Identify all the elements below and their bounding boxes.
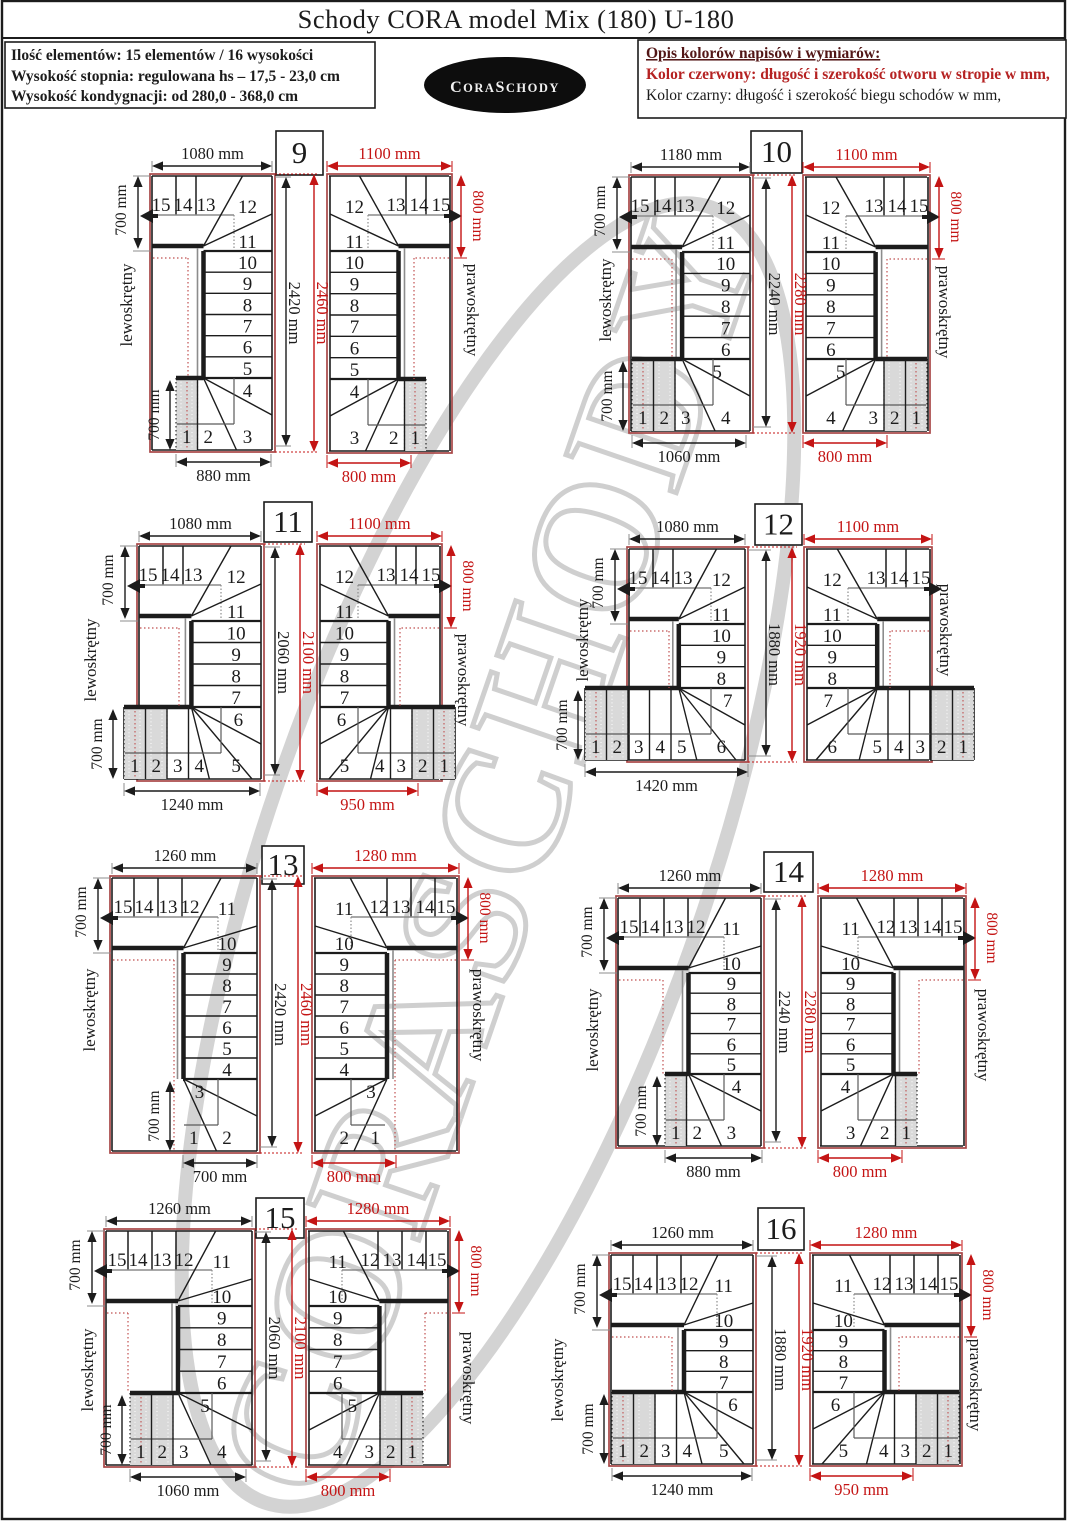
svg-text:2: 2 xyxy=(203,427,213,448)
svg-text:700 mm: 700 mm xyxy=(572,1263,589,1314)
svg-text:3: 3 xyxy=(661,1441,671,1462)
svg-text:13: 13 xyxy=(377,565,396,586)
svg-text:Opis kolorów napisów i wymiaró: Opis kolorów napisów i wymiarów: xyxy=(646,45,880,62)
svg-text:1280 mm: 1280 mm xyxy=(354,846,417,865)
svg-text:700 mm: 700 mm xyxy=(98,1404,115,1455)
svg-text:2: 2 xyxy=(639,1441,649,1462)
svg-text:5: 5 xyxy=(727,1055,737,1076)
svg-text:1880 mm: 1880 mm xyxy=(771,1328,790,1391)
svg-text:11: 11 xyxy=(345,232,363,253)
svg-text:12: 12 xyxy=(361,1250,380,1271)
svg-text:lewoskrętny: lewoskrętny xyxy=(81,618,100,702)
svg-text:14: 14 xyxy=(923,917,943,938)
svg-text:1920 mm: 1920 mm xyxy=(798,1328,817,1391)
svg-text:13: 13 xyxy=(268,847,299,882)
svg-text:1260 mm: 1260 mm xyxy=(148,1199,211,1218)
svg-text:8: 8 xyxy=(717,669,727,690)
svg-text:9: 9 xyxy=(243,274,253,295)
svg-text:9: 9 xyxy=(719,1332,729,1353)
svg-text:2420 mm: 2420 mm xyxy=(271,983,290,1046)
svg-text:prawoskrętny: prawoskrętny xyxy=(454,634,473,727)
svg-text:9: 9 xyxy=(222,955,232,976)
svg-text:3: 3 xyxy=(681,408,691,429)
svg-text:4: 4 xyxy=(682,1441,692,1462)
svg-text:1: 1 xyxy=(591,737,601,758)
svg-text:3: 3 xyxy=(350,428,360,449)
svg-text:15: 15 xyxy=(152,195,171,216)
svg-text:9: 9 xyxy=(721,276,731,297)
svg-text:12: 12 xyxy=(821,198,840,219)
svg-text:5: 5 xyxy=(712,362,722,383)
svg-text:1: 1 xyxy=(407,1442,417,1463)
svg-text:8: 8 xyxy=(839,1352,849,1373)
svg-text:1: 1 xyxy=(410,428,420,449)
svg-text:11: 11 xyxy=(238,232,256,253)
svg-text:1: 1 xyxy=(439,756,449,777)
svg-text:Kolor czarny: długość i szerok: Kolor czarny: długość i szerokość biegu … xyxy=(646,87,1001,104)
svg-text:4: 4 xyxy=(350,382,360,403)
svg-text:11: 11 xyxy=(712,605,730,626)
svg-text:11: 11 xyxy=(329,1252,347,1273)
svg-text:5: 5 xyxy=(222,1039,232,1060)
svg-text:8: 8 xyxy=(719,1352,729,1373)
svg-text:2: 2 xyxy=(386,1442,396,1463)
svg-text:2: 2 xyxy=(157,1442,167,1463)
svg-text:8: 8 xyxy=(333,1330,343,1351)
svg-text:14: 14 xyxy=(773,854,805,889)
svg-text:15: 15 xyxy=(910,196,929,217)
svg-text:1920 mm: 1920 mm xyxy=(791,623,810,686)
svg-text:12: 12 xyxy=(335,567,354,588)
svg-text:800 mm: 800 mm xyxy=(833,1162,888,1181)
svg-text:700 mm: 700 mm xyxy=(146,389,163,440)
svg-text:8: 8 xyxy=(827,669,837,690)
svg-text:12: 12 xyxy=(873,1274,892,1295)
svg-text:10: 10 xyxy=(335,934,354,955)
svg-text:1260 mm: 1260 mm xyxy=(154,846,217,865)
svg-text:1: 1 xyxy=(182,427,192,448)
svg-text:700 mm: 700 mm xyxy=(89,718,106,769)
svg-text:3: 3 xyxy=(915,737,925,758)
svg-text:700 mm: 700 mm xyxy=(599,370,616,421)
svg-text:11: 11 xyxy=(722,919,740,940)
svg-text:7: 7 xyxy=(340,688,350,709)
svg-text:950 mm: 950 mm xyxy=(340,795,395,814)
svg-text:9: 9 xyxy=(231,645,241,666)
svg-text:14: 14 xyxy=(888,196,908,217)
svg-text:11: 11 xyxy=(834,1276,852,1297)
svg-text:14: 14 xyxy=(890,568,910,589)
svg-text:14: 14 xyxy=(410,195,430,216)
svg-text:13: 13 xyxy=(197,195,216,216)
svg-text:3: 3 xyxy=(868,408,878,429)
svg-text:2: 2 xyxy=(937,737,947,758)
svg-text:12: 12 xyxy=(181,897,200,918)
svg-text:13: 13 xyxy=(392,897,411,918)
svg-text:13: 13 xyxy=(658,1274,677,1295)
svg-text:15: 15 xyxy=(139,565,158,586)
svg-text:700 mm: 700 mm xyxy=(592,185,609,236)
svg-text:3: 3 xyxy=(396,756,406,777)
svg-text:1: 1 xyxy=(901,1123,911,1144)
svg-text:8: 8 xyxy=(231,666,241,687)
svg-text:lewoskrętny: lewoskrętny xyxy=(583,988,602,1072)
svg-text:14: 14 xyxy=(161,565,181,586)
svg-text:6: 6 xyxy=(846,1035,856,1056)
svg-text:3: 3 xyxy=(243,427,253,448)
svg-text:700 mm: 700 mm xyxy=(580,1403,597,1454)
svg-text:8: 8 xyxy=(727,994,737,1015)
svg-text:15: 15 xyxy=(912,568,931,589)
svg-text:7: 7 xyxy=(350,317,360,338)
svg-text:13: 13 xyxy=(865,196,884,217)
svg-text:1100 mm: 1100 mm xyxy=(358,144,420,163)
svg-text:5: 5 xyxy=(719,1441,729,1462)
svg-text:3: 3 xyxy=(195,1082,205,1103)
svg-text:4: 4 xyxy=(340,1060,350,1081)
svg-text:1: 1 xyxy=(189,1128,199,1149)
svg-text:800 mm: 800 mm xyxy=(467,1245,484,1296)
svg-text:lewoskrętny: lewoskrętny xyxy=(80,968,99,1052)
svg-text:4: 4 xyxy=(222,1060,232,1081)
svg-text:1260 mm: 1260 mm xyxy=(659,866,722,885)
svg-text:4: 4 xyxy=(655,737,665,758)
svg-text:700 mm: 700 mm xyxy=(73,886,90,937)
svg-text:14: 14 xyxy=(919,1274,939,1295)
svg-text:13: 13 xyxy=(159,897,178,918)
svg-text:4: 4 xyxy=(841,1077,851,1098)
svg-text:1080 mm: 1080 mm xyxy=(181,144,244,163)
svg-text:6: 6 xyxy=(222,1018,232,1039)
svg-text:880 mm: 880 mm xyxy=(196,466,251,485)
svg-text:1260 mm: 1260 mm xyxy=(651,1223,714,1242)
svg-text:1060 mm: 1060 mm xyxy=(157,1481,220,1500)
svg-text:5: 5 xyxy=(340,1039,350,1060)
svg-text:15: 15 xyxy=(629,568,648,589)
svg-text:12: 12 xyxy=(687,917,706,938)
svg-text:11: 11 xyxy=(823,605,841,626)
svg-text:14: 14 xyxy=(400,565,420,586)
svg-text:10: 10 xyxy=(821,254,840,275)
svg-text:4: 4 xyxy=(194,756,204,777)
svg-text:1080 mm: 1080 mm xyxy=(656,517,719,536)
svg-text:2: 2 xyxy=(418,756,428,777)
svg-text:8: 8 xyxy=(350,296,360,317)
svg-text:7: 7 xyxy=(333,1352,343,1373)
svg-text:4: 4 xyxy=(375,756,385,777)
svg-text:14: 14 xyxy=(634,1274,654,1295)
svg-text:10: 10 xyxy=(761,134,792,169)
svg-text:lewoskrętny: lewoskrętny xyxy=(78,1328,97,1412)
svg-text:700 mm: 700 mm xyxy=(633,1085,650,1136)
svg-text:2: 2 xyxy=(222,1128,232,1149)
svg-text:13: 13 xyxy=(387,195,406,216)
svg-text:11: 11 xyxy=(273,504,303,539)
svg-text:6: 6 xyxy=(333,1374,343,1395)
svg-text:9: 9 xyxy=(340,645,350,666)
svg-text:14: 14 xyxy=(653,196,673,217)
svg-text:7: 7 xyxy=(839,1373,849,1394)
svg-text:6: 6 xyxy=(717,737,727,758)
svg-text:15: 15 xyxy=(437,897,456,918)
svg-text:3: 3 xyxy=(900,1441,910,1462)
svg-text:12: 12 xyxy=(763,507,794,542)
svg-text:14: 14 xyxy=(641,917,661,938)
svg-text:800 mm: 800 mm xyxy=(947,191,964,242)
svg-text:7: 7 xyxy=(217,1352,227,1373)
svg-text:3: 3 xyxy=(179,1442,189,1463)
svg-text:12: 12 xyxy=(345,197,364,218)
svg-text:5: 5 xyxy=(839,1441,849,1462)
svg-text:2: 2 xyxy=(890,408,900,429)
svg-text:2: 2 xyxy=(151,756,161,777)
svg-text:8: 8 xyxy=(340,666,350,687)
svg-text:10: 10 xyxy=(335,623,354,644)
svg-text:13: 13 xyxy=(899,917,918,938)
svg-text:2420 mm: 2420 mm xyxy=(285,282,304,345)
svg-text:lewoskrętny: lewoskrętny xyxy=(596,258,615,342)
svg-text:12: 12 xyxy=(680,1274,699,1295)
svg-text:700 mm: 700 mm xyxy=(113,184,130,235)
svg-text:9: 9 xyxy=(340,955,350,976)
svg-text:7: 7 xyxy=(823,691,833,712)
svg-text:4: 4 xyxy=(721,408,731,429)
svg-text:5: 5 xyxy=(243,359,253,380)
svg-text:13: 13 xyxy=(867,568,886,589)
svg-text:1240 mm: 1240 mm xyxy=(651,1480,714,1499)
svg-text:14: 14 xyxy=(407,1250,427,1271)
svg-text:3: 3 xyxy=(846,1123,856,1144)
svg-text:5: 5 xyxy=(677,737,687,758)
svg-text:12: 12 xyxy=(370,897,389,918)
svg-text:prawoskrętny: prawoskrętny xyxy=(974,989,993,1082)
svg-text:2: 2 xyxy=(659,408,669,429)
svg-text:12: 12 xyxy=(175,1250,194,1271)
svg-text:8: 8 xyxy=(217,1330,227,1351)
svg-text:1180 mm: 1180 mm xyxy=(660,145,722,164)
svg-text:3: 3 xyxy=(364,1442,374,1463)
svg-text:800 mm: 800 mm xyxy=(983,912,1000,963)
svg-text:1100 mm: 1100 mm xyxy=(835,145,897,164)
svg-text:Wysokość kondygnacji: od 280,0: Wysokość kondygnacji: od 280,0 - 368,0 c… xyxy=(11,88,298,105)
svg-text:6: 6 xyxy=(217,1374,227,1395)
svg-text:4: 4 xyxy=(826,408,836,429)
svg-text:10: 10 xyxy=(212,1287,231,1308)
svg-text:lewoskrętny: lewoskrętny xyxy=(573,598,592,682)
svg-text:14: 14 xyxy=(135,897,155,918)
svg-text:15: 15 xyxy=(422,565,441,586)
svg-text:700 mm: 700 mm xyxy=(146,1090,163,1141)
svg-text:1100 mm: 1100 mm xyxy=(348,514,410,533)
svg-text:9: 9 xyxy=(217,1309,227,1330)
svg-text:Schody CORA model Mix (180) U-: Schody CORA model Mix (180) U-180 xyxy=(298,4,735,34)
svg-text:10: 10 xyxy=(238,253,257,274)
svg-text:11: 11 xyxy=(213,1252,231,1273)
svg-text:9: 9 xyxy=(717,648,727,669)
svg-text:1280 mm: 1280 mm xyxy=(347,1199,410,1218)
svg-text:12: 12 xyxy=(877,917,896,938)
svg-text:3: 3 xyxy=(366,1082,376,1103)
svg-text:1: 1 xyxy=(958,737,968,758)
svg-text:1: 1 xyxy=(136,1442,146,1463)
svg-text:9: 9 xyxy=(827,648,837,669)
svg-text:10: 10 xyxy=(227,623,246,644)
svg-text:7: 7 xyxy=(243,317,253,338)
svg-text:7: 7 xyxy=(222,997,232,1018)
svg-text:7: 7 xyxy=(721,318,731,339)
svg-text:6: 6 xyxy=(721,340,731,361)
svg-text:6: 6 xyxy=(727,1035,737,1056)
svg-text:15: 15 xyxy=(944,917,963,938)
svg-text:13: 13 xyxy=(676,196,695,217)
svg-text:10: 10 xyxy=(716,254,735,275)
svg-text:2060 mm: 2060 mm xyxy=(265,1317,284,1380)
svg-text:9: 9 xyxy=(846,974,856,995)
svg-text:14: 14 xyxy=(129,1250,149,1271)
svg-text:13: 13 xyxy=(665,917,684,938)
svg-text:12: 12 xyxy=(716,198,735,219)
svg-text:800 mm: 800 mm xyxy=(979,1269,996,1320)
svg-text:10: 10 xyxy=(712,626,731,647)
svg-text:prawoskrętny: prawoskrętny xyxy=(463,264,482,357)
svg-text:7: 7 xyxy=(723,691,733,712)
svg-text:15: 15 xyxy=(428,1250,447,1271)
svg-text:800 mm: 800 mm xyxy=(459,560,476,611)
svg-text:lewoskrętny: lewoskrętny xyxy=(548,1338,567,1422)
svg-text:1280 mm: 1280 mm xyxy=(861,866,924,885)
svg-text:7: 7 xyxy=(231,688,241,709)
svg-text:2280 mm: 2280 mm xyxy=(791,273,810,336)
svg-text:6: 6 xyxy=(340,1018,350,1039)
svg-text:7: 7 xyxy=(719,1373,729,1394)
svg-text:8: 8 xyxy=(340,976,350,997)
svg-text:2460 mm: 2460 mm xyxy=(297,983,316,1046)
svg-text:1: 1 xyxy=(638,408,648,429)
svg-text:12: 12 xyxy=(712,570,731,591)
svg-text:Wysokość stopnia: regulowana: Wysokość stopnia: regulowana hs – 17,5 -… xyxy=(11,68,340,85)
svg-text:15: 15 xyxy=(631,196,650,217)
svg-text:700 mm: 700 mm xyxy=(67,1239,84,1290)
svg-text:1060 mm: 1060 mm xyxy=(658,447,721,466)
svg-text:11: 11 xyxy=(822,233,840,254)
svg-text:700 mm: 700 mm xyxy=(100,554,117,605)
svg-text:5: 5 xyxy=(350,360,360,381)
svg-text:Ilość elementów: 15 elementów: Ilość elementów: 15 elementów / 16 wysok… xyxy=(11,47,314,64)
svg-text:7: 7 xyxy=(340,997,350,1018)
svg-text:1: 1 xyxy=(370,1128,380,1149)
svg-text:2060 mm: 2060 mm xyxy=(274,631,293,694)
svg-text:7: 7 xyxy=(846,1015,856,1036)
svg-text:2240 mm: 2240 mm xyxy=(775,991,794,1054)
svg-text:5: 5 xyxy=(836,362,846,383)
svg-text:1: 1 xyxy=(130,756,140,777)
svg-text:2100 mm: 2100 mm xyxy=(291,1317,310,1380)
svg-text:800 mm: 800 mm xyxy=(469,190,486,241)
svg-text:8: 8 xyxy=(826,297,836,318)
svg-text:6: 6 xyxy=(826,340,836,361)
svg-text:10: 10 xyxy=(328,1287,347,1308)
svg-text:9: 9 xyxy=(350,275,360,296)
svg-text:800 mm: 800 mm xyxy=(818,447,873,466)
svg-text:2: 2 xyxy=(880,1123,890,1144)
svg-text:10: 10 xyxy=(722,954,741,975)
svg-text:5: 5 xyxy=(872,737,882,758)
svg-text:800 mm: 800 mm xyxy=(476,892,493,943)
svg-text:15: 15 xyxy=(432,195,451,216)
svg-text:14: 14 xyxy=(651,568,671,589)
svg-text:4: 4 xyxy=(217,1442,227,1463)
svg-text:950 mm: 950 mm xyxy=(834,1480,889,1499)
svg-text:5: 5 xyxy=(846,1055,856,1076)
svg-text:15: 15 xyxy=(108,1250,127,1271)
svg-text:1080 mm: 1080 mm xyxy=(169,514,232,533)
svg-text:11: 11 xyxy=(335,899,353,920)
svg-text:2100 mm: 2100 mm xyxy=(299,631,318,694)
svg-text:CORASCHODY: CORASCHODY xyxy=(450,79,560,96)
svg-text:4: 4 xyxy=(894,737,904,758)
svg-text:2280 mm: 2280 mm xyxy=(801,991,820,1054)
svg-text:8: 8 xyxy=(243,295,253,316)
svg-text:prawoskrętny: prawoskrętny xyxy=(966,1339,985,1432)
svg-text:15: 15 xyxy=(620,917,639,938)
svg-text:4: 4 xyxy=(243,381,253,402)
svg-text:8: 8 xyxy=(721,297,731,318)
svg-text:14: 14 xyxy=(416,897,436,918)
svg-text:11: 11 xyxy=(717,233,735,254)
svg-text:5: 5 xyxy=(200,1396,210,1417)
svg-text:11: 11 xyxy=(227,602,245,623)
svg-text:lewoskrętny: lewoskrętny xyxy=(117,263,136,347)
svg-text:5: 5 xyxy=(340,756,350,777)
svg-text:3: 3 xyxy=(727,1123,737,1144)
svg-text:10: 10 xyxy=(218,934,237,955)
svg-text:8: 8 xyxy=(846,994,856,1015)
svg-text:700 mm: 700 mm xyxy=(193,1167,248,1186)
svg-text:1240 mm: 1240 mm xyxy=(161,795,224,814)
svg-text:15: 15 xyxy=(940,1274,959,1295)
svg-text:13: 13 xyxy=(184,565,203,586)
svg-text:1: 1 xyxy=(911,408,921,429)
svg-text:5: 5 xyxy=(231,756,241,777)
svg-text:13: 13 xyxy=(895,1274,914,1295)
svg-text:10: 10 xyxy=(345,253,364,274)
svg-text:7: 7 xyxy=(826,318,836,339)
svg-text:1: 1 xyxy=(671,1123,681,1144)
svg-text:800 mm: 800 mm xyxy=(342,467,397,486)
svg-text:6: 6 xyxy=(234,710,244,731)
svg-text:2: 2 xyxy=(612,737,622,758)
svg-text:880 mm: 880 mm xyxy=(686,1162,741,1181)
svg-text:11: 11 xyxy=(715,1276,733,1297)
svg-text:1280 mm: 1280 mm xyxy=(855,1223,918,1242)
svg-text:prawoskrętny: prawoskrętny xyxy=(469,969,488,1062)
svg-text:12: 12 xyxy=(238,197,257,218)
svg-text:6: 6 xyxy=(831,1395,841,1416)
svg-text:12: 12 xyxy=(227,567,246,588)
svg-text:9: 9 xyxy=(727,974,737,995)
svg-text:1420 mm: 1420 mm xyxy=(635,776,698,795)
svg-text:2: 2 xyxy=(340,1128,350,1149)
svg-text:1880 mm: 1880 mm xyxy=(765,623,784,686)
svg-text:11: 11 xyxy=(335,602,353,623)
svg-text:16: 16 xyxy=(766,1211,797,1246)
svg-text:5: 5 xyxy=(348,1396,358,1417)
svg-text:10: 10 xyxy=(841,954,860,975)
svg-text:prawoskrętny: prawoskrętny xyxy=(935,266,954,359)
svg-text:6: 6 xyxy=(350,339,360,360)
svg-text:2240 mm: 2240 mm xyxy=(765,273,784,336)
svg-text:9: 9 xyxy=(826,276,836,297)
